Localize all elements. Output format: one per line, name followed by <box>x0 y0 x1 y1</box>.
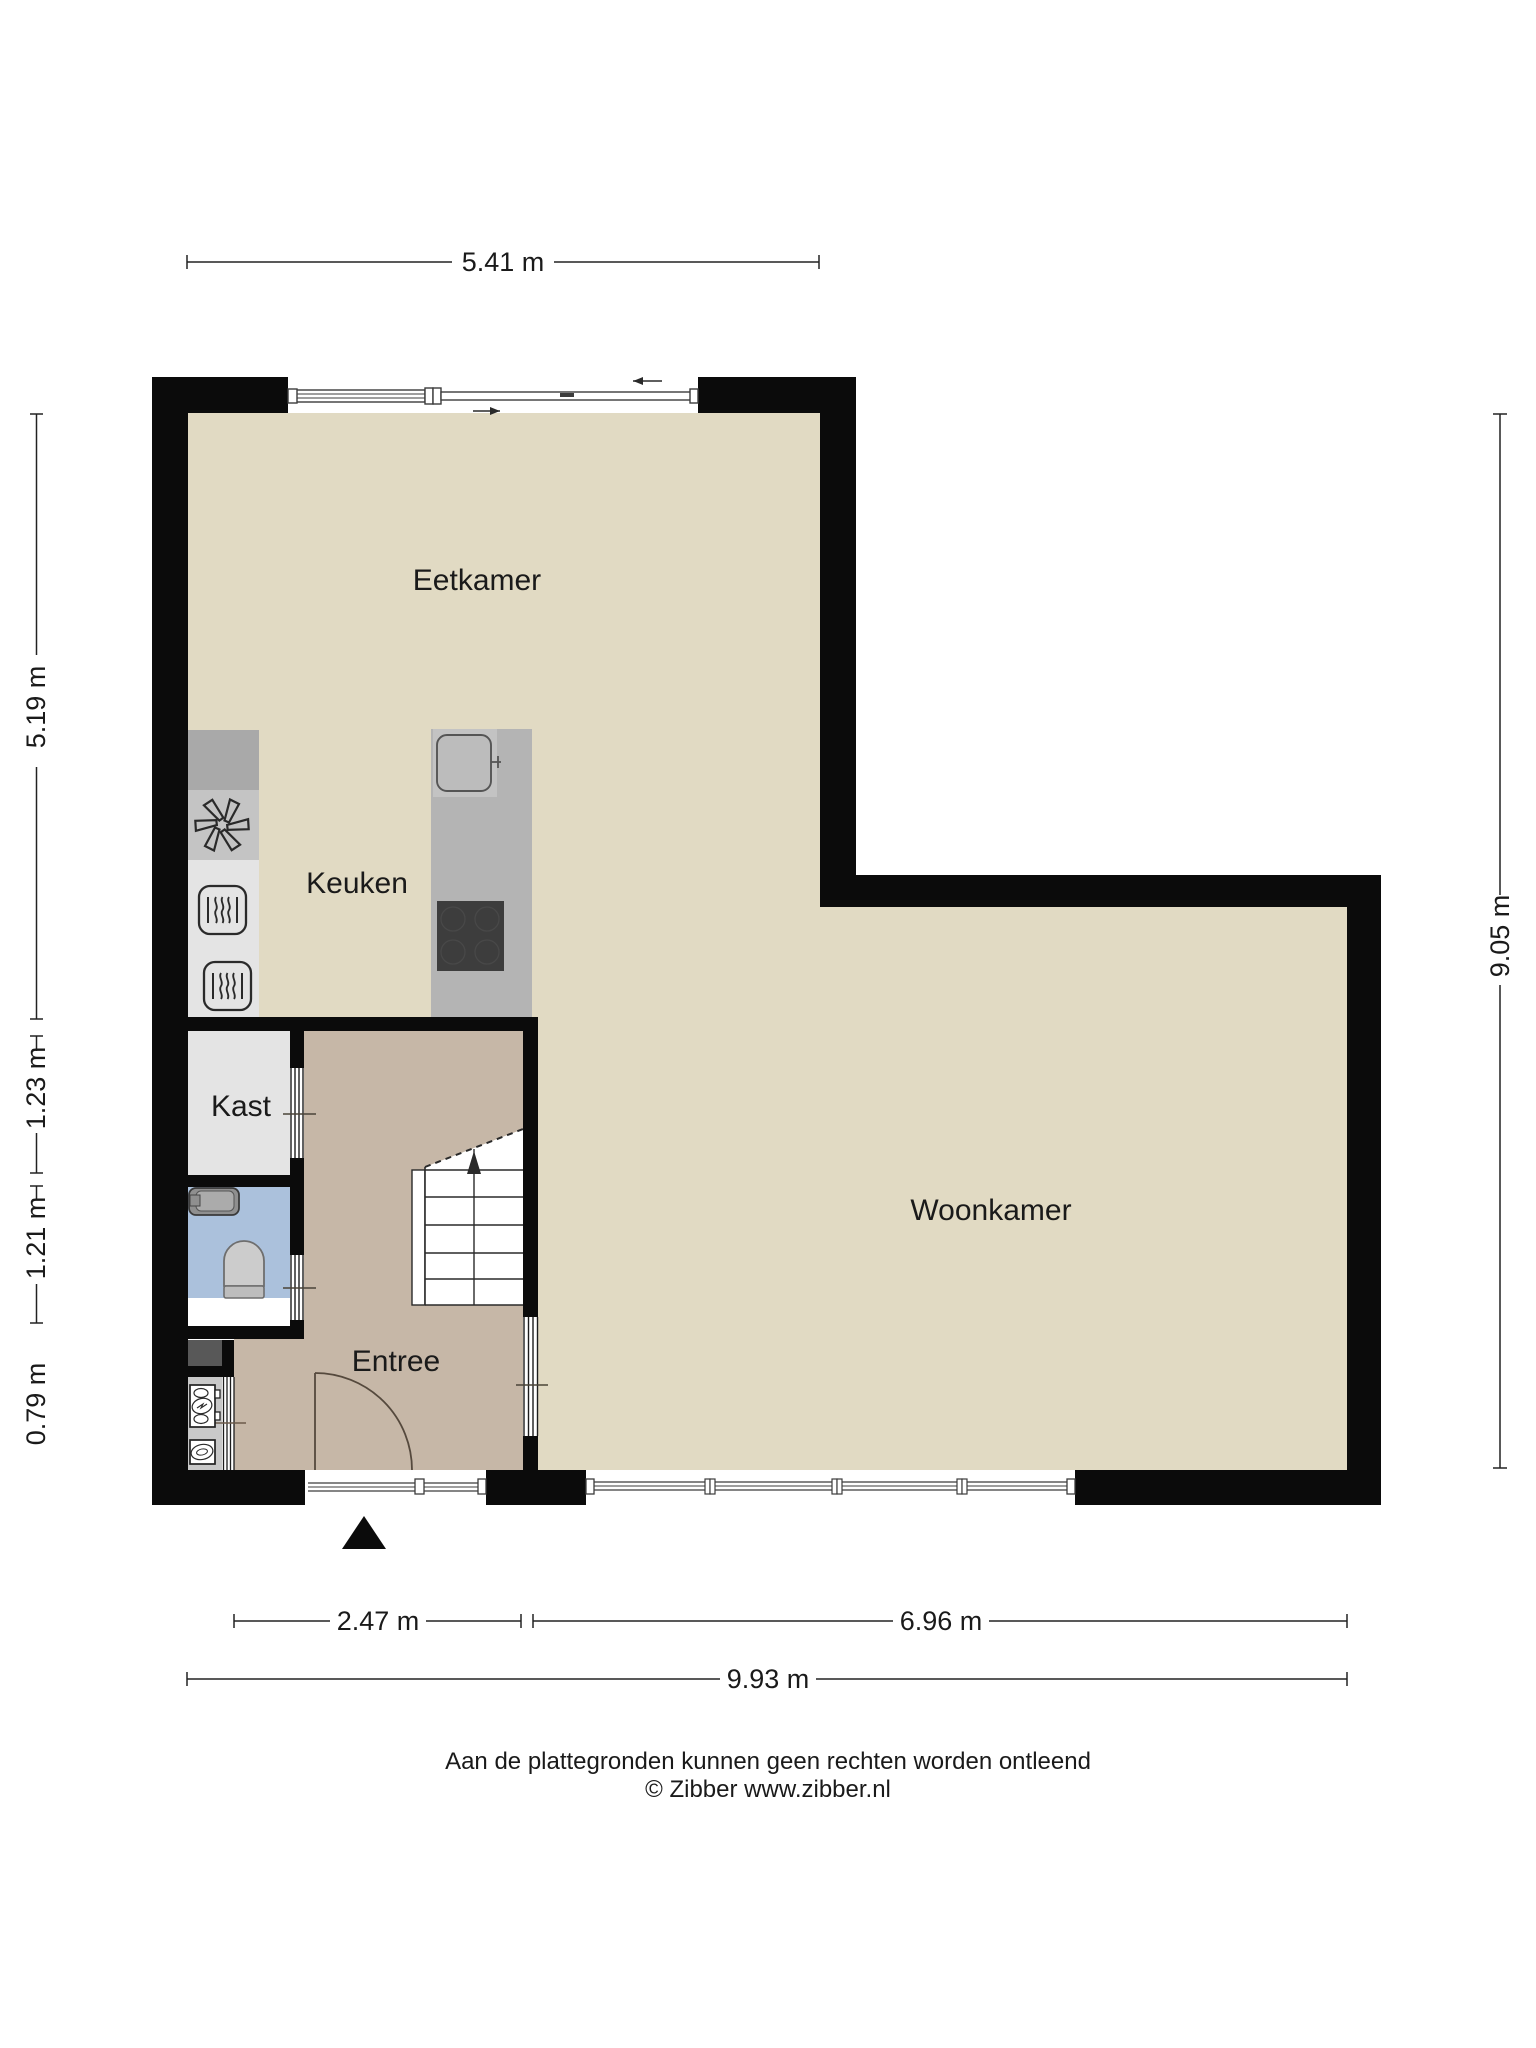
svg-text:5.41 m: 5.41 m <box>462 247 545 277</box>
svg-text:© Zibber www.zibber.nl: © Zibber www.zibber.nl <box>645 1776 891 1803</box>
svg-text:6.96 m: 6.96 m <box>900 1606 983 1636</box>
svg-text:0.79 m: 0.79 m <box>21 1363 51 1446</box>
svg-text:9.93 m: 9.93 m <box>727 1664 810 1694</box>
svg-text:1.21 m: 1.21 m <box>21 1197 51 1280</box>
svg-text:2.47 m: 2.47 m <box>337 1606 420 1636</box>
svg-text:Keuken: Keuken <box>306 867 408 900</box>
svg-text:Woonkamer: Woonkamer <box>910 1194 1071 1227</box>
svg-text:Eetkamer: Eetkamer <box>413 564 541 597</box>
svg-text:Entree: Entree <box>352 1345 440 1378</box>
svg-text:9.05 m: 9.05 m <box>1485 895 1515 978</box>
svg-text:Kast: Kast <box>211 1090 272 1123</box>
svg-text:5.19 m: 5.19 m <box>21 666 51 749</box>
svg-text:Aan de plattegronden kunnen ge: Aan de plattegronden kunnen geen rechten… <box>445 1748 1091 1775</box>
svg-text:1.23 m: 1.23 m <box>21 1047 51 1130</box>
